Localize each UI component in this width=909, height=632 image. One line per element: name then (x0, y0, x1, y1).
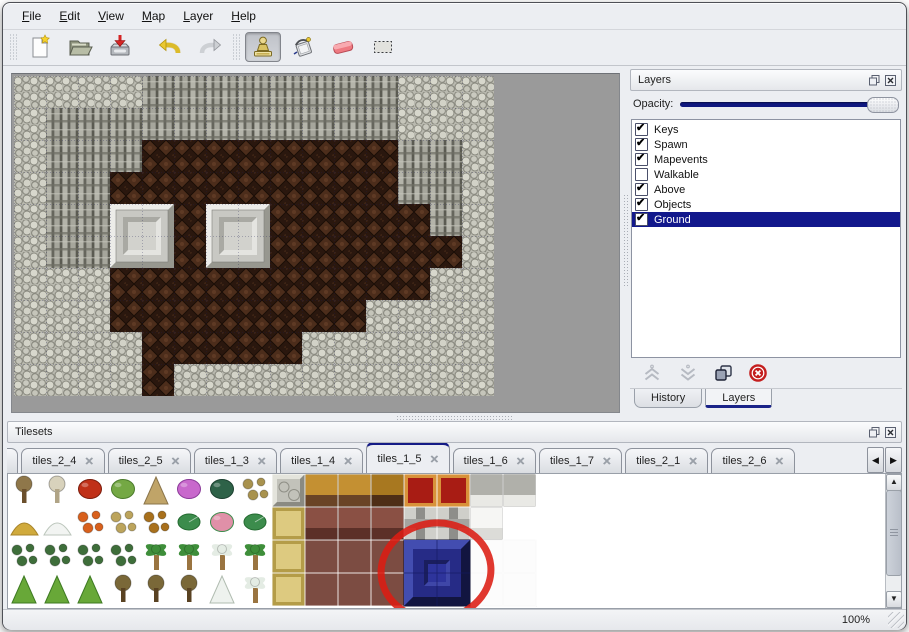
opacity-row: Opacity: (630, 91, 902, 117)
tileset-tiles[interactable] (8, 474, 858, 608)
layer-row-mapevents[interactable]: Mapevents (632, 152, 900, 167)
layer-visibility-checkbox[interactable] (635, 153, 648, 166)
opacity-slider-handle[interactable] (867, 97, 899, 113)
close-tab-icon[interactable]: ✕ (775, 455, 784, 468)
tileset-tab-tiles_2_4[interactable]: tiles_2_4✕ (21, 448, 104, 473)
tileset-tab-3[interactable]: 3✕ (7, 448, 18, 473)
close-tab-icon[interactable]: ✕ (516, 455, 525, 468)
layer-name: Ground (654, 214, 691, 226)
fill-tool-button[interactable] (285, 32, 321, 62)
scroll-down-button[interactable]: ▼ (886, 591, 902, 608)
tileset-tab-bar: 3✕tiles_2_4✕tiles_2_5✕tiles_1_3✕tiles_1_… (7, 443, 902, 473)
merge-layer-icon (714, 364, 733, 382)
layer-list: KeysSpawnMapeventsWalkableAboveObjectsGr… (631, 119, 901, 358)
tileset-tab-tiles_1_3[interactable]: tiles_1_3✕ (194, 448, 277, 473)
vertical-splitter[interactable] (620, 67, 630, 413)
resize-grip[interactable] (888, 612, 904, 628)
merge-layer-button[interactable] (714, 364, 733, 382)
left-arrow-icon: ◀ (872, 455, 879, 465)
scroll-tabs-left-button[interactable]: ◀ (867, 447, 884, 473)
app-window: FileEditViewMapLayerHelp (2, 2, 907, 630)
eraser-tool-icon (330, 34, 356, 60)
scroll-tabs-right-button[interactable]: ▶ (885, 447, 902, 473)
tileset-tab-label: tiles_1_5 (377, 453, 421, 465)
layer-name: Keys (654, 124, 678, 136)
layer-name: Mapevents (654, 154, 708, 166)
select-tool-button[interactable] (365, 32, 401, 62)
open-folder-icon (67, 34, 93, 60)
layer-row-ground[interactable]: Ground (632, 212, 900, 227)
close-tab-icon[interactable]: ✕ (602, 455, 611, 468)
close-dock-button[interactable] (884, 426, 897, 439)
tileset-tab-label: tiles_1_7 (550, 455, 594, 467)
menu-layer[interactable]: Layer (174, 5, 222, 27)
eraser-tool-button[interactable] (325, 32, 361, 62)
close-tab-icon[interactable]: ✕ (429, 453, 438, 466)
fill-tool-icon (290, 34, 316, 60)
layer-visibility-checkbox[interactable] (635, 138, 648, 151)
lower-layer-button[interactable] (678, 364, 698, 382)
tileset-tab-tiles_1_4[interactable]: tiles_1_4✕ (280, 448, 363, 473)
redo-button[interactable] (192, 32, 228, 62)
selected-tile[interactable] (404, 540, 470, 606)
stamp-tool-button[interactable] (245, 32, 281, 62)
toolbar-grip[interactable] (233, 34, 240, 60)
close-icon (885, 75, 896, 86)
tile-map[interactable] (14, 76, 494, 396)
float-dock-button[interactable] (868, 426, 881, 439)
undo-icon (157, 34, 183, 60)
layers-dock: Layers Opacity: KeysSpawnMapeventsW (630, 69, 902, 413)
layer-name: Objects (654, 199, 691, 211)
delete-layer-icon (749, 364, 767, 382)
tileset-tab-label: tiles_2_4 (32, 455, 76, 467)
layers-dock-titlebar: Layers (630, 69, 902, 91)
layer-visibility-checkbox[interactable] (635, 198, 648, 211)
tileset-tab-label: tiles_2_6 (722, 455, 766, 467)
tab-scroll-buttons: ◀ ▶ (866, 447, 902, 473)
close-tab-icon[interactable]: ✕ (257, 455, 266, 468)
layer-name: Spawn (654, 139, 688, 151)
scroll-up-button[interactable]: ▲ (886, 474, 902, 491)
delete-layer-button[interactable] (749, 364, 767, 382)
layer-name: Above (654, 184, 685, 196)
layer-row-spawn[interactable]: Spawn (632, 137, 900, 152)
tilesets-dock-title: Tilesets (15, 426, 865, 438)
tileset-palette[interactable]: ▲ ▼ (7, 473, 902, 609)
save-icon (107, 34, 133, 60)
menu-map[interactable]: Map (133, 5, 174, 27)
map-canvas[interactable] (11, 73, 620, 413)
select-tool-icon (370, 34, 396, 60)
layer-row-walkable[interactable]: Walkable (632, 167, 900, 182)
raise-layer-icon (642, 364, 662, 382)
toolbar-grip[interactable] (10, 34, 17, 60)
new-file-icon (27, 34, 53, 60)
redo-icon (197, 34, 223, 60)
tileset-tab-label: tiles_2_5 (119, 455, 163, 467)
layer-name: Walkable (654, 169, 699, 181)
layer-visibility-checkbox[interactable] (635, 168, 648, 181)
lower-layer-icon (678, 364, 698, 382)
close-tab-icon[interactable]: ✕ (84, 455, 93, 468)
dock-tab-history[interactable]: History (634, 389, 702, 408)
layer-row-objects[interactable]: Objects (632, 197, 900, 212)
dock-tab-layers[interactable]: Layers (705, 389, 772, 408)
float-icon (869, 75, 880, 86)
undo-button[interactable] (152, 32, 188, 62)
layer-row-above[interactable]: Above (632, 182, 900, 197)
horizontal-splitter[interactable] (3, 413, 906, 421)
raise-layer-button[interactable] (642, 364, 662, 382)
layer-visibility-checkbox[interactable] (635, 213, 648, 226)
menu-file[interactable]: File (13, 5, 50, 27)
opacity-slider[interactable] (680, 96, 899, 112)
tileset-tab-tiles_2_6[interactable]: tiles_2_6✕ (711, 448, 794, 473)
layer-visibility-checkbox[interactable] (635, 123, 648, 136)
opacity-label: Opacity: (633, 98, 673, 110)
tileset-tab-tiles_2_1[interactable]: tiles_2_1✕ (625, 448, 708, 473)
zoom-level: 100% (842, 614, 870, 626)
open-map-button[interactable] (62, 32, 98, 62)
close-tab-icon[interactable]: ✕ (171, 455, 180, 468)
dock-tab-bar: HistoryLayers (630, 389, 902, 413)
toolbar (3, 29, 906, 66)
tilesets-dock: Tilesets 3✕tiles_2_4✕tiles_2_5✕tiles_1_3… (7, 421, 902, 609)
close-tab-icon[interactable]: ✕ (343, 455, 352, 468)
save-map-button[interactable] (102, 32, 138, 62)
opacity-slider-track[interactable] (680, 102, 897, 107)
map-grid-overlay (14, 76, 494, 396)
tileset-tab-tiles_1_5[interactable]: tiles_1_5✕ (366, 443, 449, 473)
status-bar: 100% (3, 609, 906, 630)
menu-view[interactable]: View (89, 5, 133, 27)
tileset-tab-tiles_1_7[interactable]: tiles_1_7✕ (539, 448, 622, 473)
palette-scrollbar[interactable]: ▲ ▼ (885, 474, 901, 608)
close-icon (885, 427, 896, 438)
scrollbar-thumb[interactable] (886, 490, 902, 576)
layer-row-keys[interactable]: Keys (632, 122, 900, 137)
layers-dock-title: Layers (638, 74, 865, 86)
menu-bar: FileEditViewMapLayerHelp (3, 3, 906, 30)
stamp-tool-icon (250, 34, 276, 60)
tileset-tab-label: tiles_2_1 (636, 455, 680, 467)
close-tab-icon[interactable]: ✕ (688, 455, 697, 468)
menu-help[interactable]: Help (222, 5, 265, 27)
tileset-tab-label: tiles_1_3 (205, 455, 249, 467)
right-arrow-icon: ▶ (890, 455, 897, 465)
layer-visibility-checkbox[interactable] (635, 183, 648, 196)
tileset-tab-label: tiles_1_6 (464, 455, 508, 467)
float-icon (869, 427, 880, 438)
tileset-tab-label: tiles_1_4 (291, 455, 335, 467)
float-dock-button[interactable] (868, 74, 881, 87)
tilesets-dock-titlebar: Tilesets (7, 421, 902, 443)
menu-edit[interactable]: Edit (50, 5, 89, 27)
layer-buttons (630, 358, 902, 389)
new-map-button[interactable] (22, 32, 58, 62)
close-dock-button[interactable] (884, 74, 897, 87)
tileset-tab-tiles_1_6[interactable]: tiles_1_6✕ (453, 448, 536, 473)
tileset-tab-tiles_2_5[interactable]: tiles_2_5✕ (108, 448, 191, 473)
